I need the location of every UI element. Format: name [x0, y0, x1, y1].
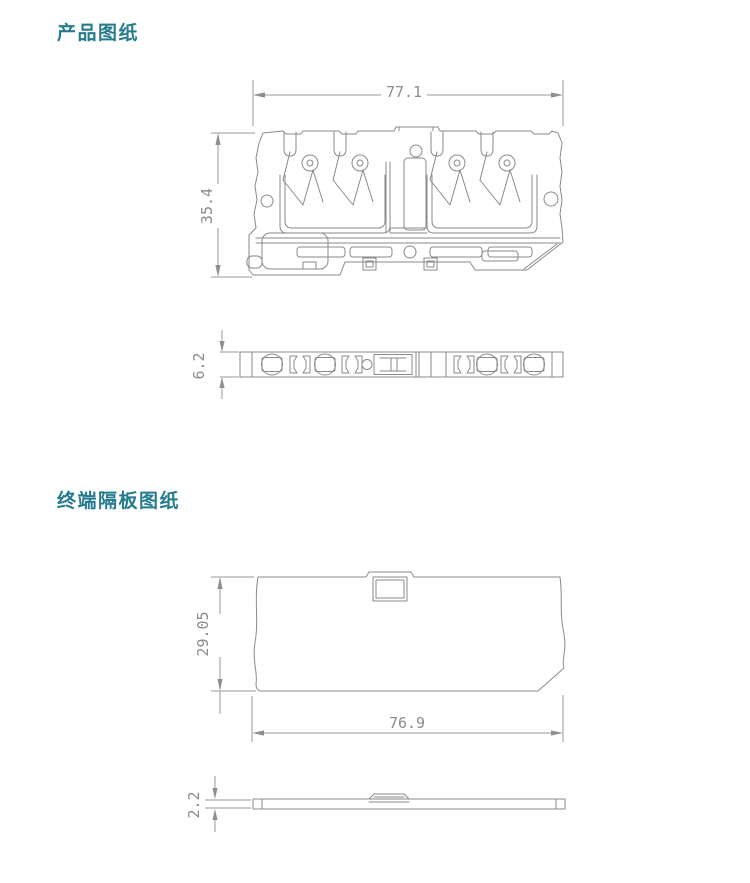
test-point-hole [362, 360, 372, 370]
center-marker-block [374, 355, 412, 375]
dim-label-35-4: 35.4 [198, 188, 216, 224]
product-drawing-figure: 77.1 35.4 [180, 60, 580, 420]
dim-label-6-2: 6.2 [190, 352, 208, 379]
dim-label-2-2: 2.2 [185, 791, 203, 818]
section-title-end-plate-drawing: 终端隔板图纸 [57, 492, 180, 512]
dim-label-77-1: 77.1 [386, 83, 422, 101]
mounting-tab [373, 577, 407, 601]
dim-label-29-05: 29.05 [194, 611, 212, 656]
dimension-width-77-1: 77.1 [253, 80, 563, 126]
side-view-tab [369, 794, 409, 802]
end-plate-drawing-figure: 29.05 76.9 2.2 [180, 556, 600, 860]
section-title-product-drawing: 产品图纸 [57, 24, 139, 44]
spring-clamps [283, 152, 520, 205]
dimension-height-6-2: 6.2 [190, 330, 239, 399]
dimension-height-29-05: 29.05 [194, 577, 256, 714]
end-plate-side-view [253, 794, 565, 809]
contact-channels [280, 175, 537, 233]
dim-label-76-9: 76.9 [389, 714, 425, 732]
terminal-block-side-view [247, 127, 563, 275]
dimension-height-35-4: 35.4 [198, 133, 255, 277]
divider-lines [416, 352, 446, 377]
terminal-block-top-view [240, 352, 563, 377]
center-column-details [386, 127, 433, 232]
wire-entry-slots [284, 132, 493, 156]
product-drawing-page: 产品图纸 77.1 35.4 [0, 0, 750, 883]
actuator-slots [290, 356, 521, 373]
end-plate-front-view [254, 572, 565, 691]
dimension-width-76-9: 76.9 [252, 695, 563, 742]
dimension-thickness-2-2: 2.2 [185, 776, 251, 832]
